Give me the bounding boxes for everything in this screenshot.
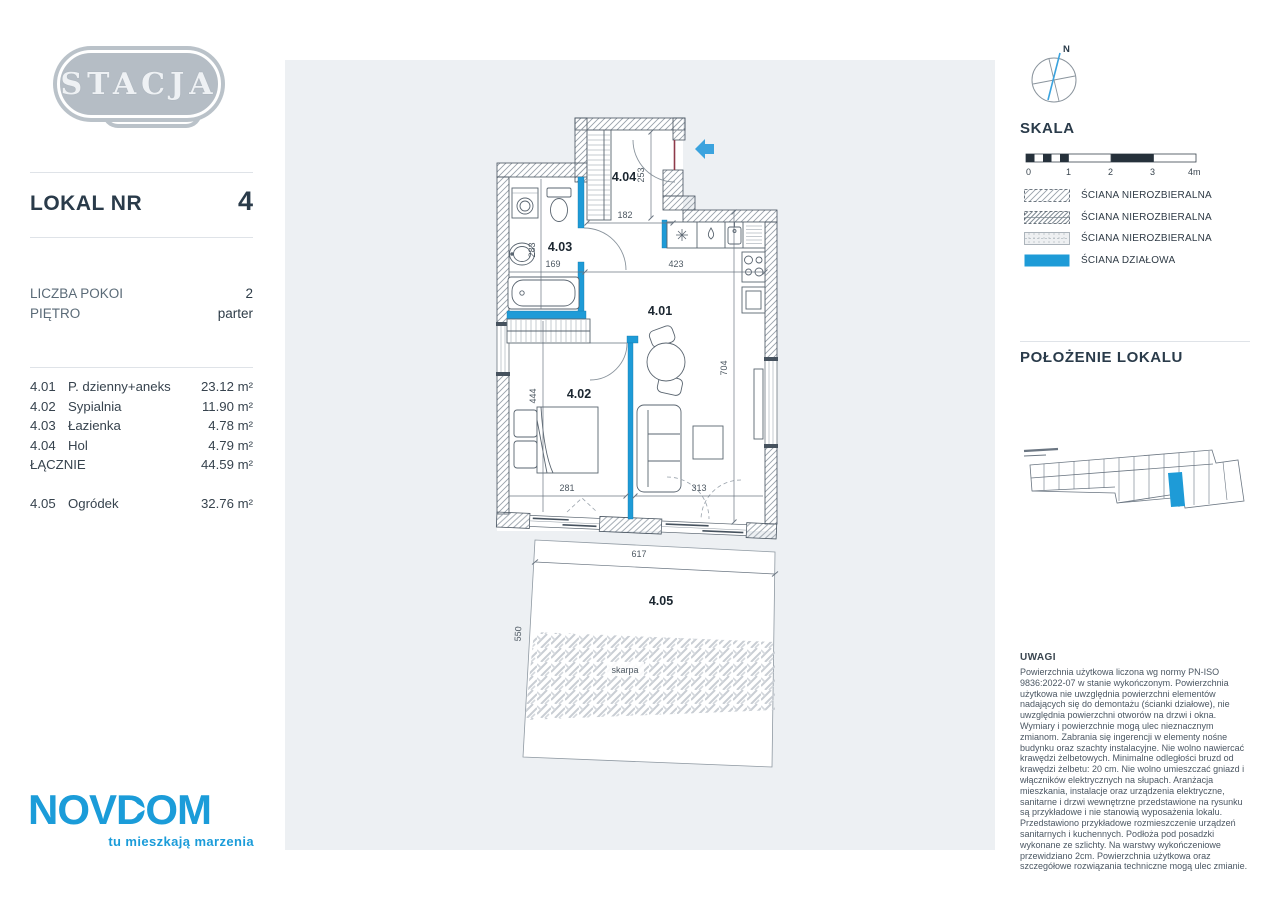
legend-item: ŚCIANA NIEROZBIERALNA [1024,232,1212,245]
wall [663,170,683,196]
highlighted-unit [1168,472,1185,507]
detail-row: PIĘTRO parter [30,304,253,324]
stove [742,252,765,282]
room-name: Sypialnia [68,397,202,417]
scale-tick-0: 0 [1026,167,1031,177]
scale-tick-3: 3 [1150,167,1155,177]
floor-plan: skarpa 4.05 617 550 [285,60,995,850]
room-total-area: 44.59 m² [201,455,253,475]
scale-tick-2: 2 [1108,167,1113,177]
room-area: 11.90 m² [202,397,253,417]
compass: N [1022,38,1092,110]
room-table: 4.01 P. dzienny+aneks 23.12 m² 4.02 Sypi… [30,377,253,513]
dim-garden-width: 617 [631,549,646,559]
wall [673,118,685,140]
divider [30,172,253,173]
wall-hatch-dense-icon [1024,211,1070,224]
garden-label: 4.05 [649,594,673,608]
washing-machine [512,188,538,218]
wall-hatch-sparse-icon [1024,189,1070,202]
compass-north-label: N [1063,44,1070,55]
coffee-table [693,426,723,459]
dim-hall-width: 182 [617,210,632,220]
dim-garden-height: 550 [513,626,524,642]
hall-label: 4.04 [612,170,636,184]
wall-dashed-light-icon [1024,232,1070,245]
dim-hall-height: 253 [636,167,646,182]
legend-label: ŚCIANA NIEROZBIERALNA [1081,190,1212,201]
room-row: 4.01 P. dzienny+aneks 23.12 m² [30,377,253,397]
developer-logo: NOVDOM tu mieszkają marzenia [28,786,258,858]
legend-label: ŚCIANA NIEROZBIERALNA [1081,233,1212,244]
location-minimap [1018,425,1253,530]
skarpa-label: skarpa [611,665,638,675]
bedroom-label: 4.02 [567,387,591,401]
wall [497,177,509,325]
dim-bath-width: 169 [545,259,560,269]
scale-tick-1: 1 [1066,167,1071,177]
dim-bedroom-height: 444 [528,388,538,403]
room-area: 32.76 m² [201,494,253,514]
wall [497,373,509,514]
wall [496,512,530,528]
room-number: 4.03 [30,416,68,436]
unit-label: LOKAL NR [30,192,142,216]
kitchen-counter [667,222,765,248]
room-row: 4.02 Sypialnia 11.90 m² [30,397,253,417]
wall-solid-blue-icon [1024,254,1070,267]
wall [765,445,777,524]
room-total-row: ŁĄCZNIE 44.59 m² [30,455,253,475]
partition-wall [507,311,586,319]
oven [742,287,765,313]
legend-label: ŚCIANA NIEROZBIERALNA [1081,212,1212,223]
window-right [764,357,778,448]
scale-bar: 0 1 2 3 4m [1024,148,1209,180]
project-logo: STACJA [57,50,221,118]
divider [30,367,253,368]
room-name: Ogródek [68,494,201,514]
legend-item: ŚCIANA DZIAŁOWA [1024,254,1212,267]
detail-label: LICZBA POKOI [30,284,123,304]
garden-area: skarpa 4.05 617 550 [513,540,778,767]
dim-kitchen-width: 423 [668,259,683,269]
room-area: 4.78 m² [208,416,253,436]
dim-living-height: 704 [719,360,729,375]
room-number: 4.02 [30,397,68,417]
bathtub [508,277,579,309]
wall [683,210,777,222]
legend: ŚCIANA NIEROZBIERALNA ŚCIANA NIEROZBIERA… [1024,189,1212,275]
notes-body: Powierzchnia użytkowa liczona wg normy P… [1020,667,1253,872]
unit-number: 4 [238,186,253,217]
divider [30,237,253,238]
notes: UWAGI Powierzchnia użytkowa liczona wg n… [1020,652,1253,872]
legend-label: ŚCIANA DZIAŁOWA [1081,255,1175,266]
room-row-garden: 4.05 Ogródek 32.76 m² [30,494,253,514]
partition-wall [628,343,633,519]
scale-title: SKALA [1020,120,1075,137]
detail-row: LICZBA POKOI 2 [30,284,253,304]
unit-details: LICZBA POKOI 2 PIĘTRO parter [30,284,253,324]
room-number: 4.01 [30,377,68,397]
room-total-label: ŁĄCZNIE [30,455,201,475]
legend-item: ŚCIANA NIEROZBIERALNA [1024,189,1212,202]
unit-header: LOKAL NR 4 [30,186,253,217]
partition-wall [662,220,667,248]
living-label: 4.01 [648,304,672,318]
project-logo-text: STACJA [61,67,218,102]
bathroom-label: 4.03 [548,240,572,254]
scale-tick-4: 4m [1188,167,1201,177]
room-row: 4.04 Hol 4.79 m² [30,436,253,456]
dim-bath-height: 283 [527,242,537,257]
wall [663,196,695,210]
detail-label: PIĘTRO [30,304,80,324]
room-name: Łazienka [68,416,208,436]
legend-item: ŚCIANA NIEROZBIERALNA [1024,211,1212,224]
dim-living-width: 313 [691,483,706,493]
skarpa-slope-hatch [525,632,775,720]
wall [575,118,685,130]
partition-wall [627,336,638,343]
notes-title: UWAGI [1020,652,1253,663]
room-area: 4.79 m² [208,436,253,456]
entrance-arrow-icon [695,139,714,159]
developer-logo-text: NOVDOM [28,786,211,833]
compass-needle [1048,53,1060,100]
developer-tagline: tu mieszkają marzenia [108,834,254,849]
room-name: P. dzienny+aneks [68,377,201,397]
wall [746,523,777,539]
sofa [637,405,681,492]
divider [1020,341,1250,342]
wall [765,222,777,360]
room-number: 4.04 [30,436,68,456]
dim-bedroom-width: 281 [559,483,574,493]
room-row: 4.03 Łazienka 4.78 m² [30,416,253,436]
room-area: 23.12 m² [201,377,253,397]
bedroom-closet [507,319,590,343]
location-title: POŁOŻENIE LOKALU [1020,349,1183,366]
detail-value: 2 [245,284,253,304]
wall [497,163,587,177]
partition-wall [578,177,584,228]
room-number: 4.05 [30,494,68,514]
detail-value: parter [218,304,253,324]
room-name: Hol [68,436,208,456]
